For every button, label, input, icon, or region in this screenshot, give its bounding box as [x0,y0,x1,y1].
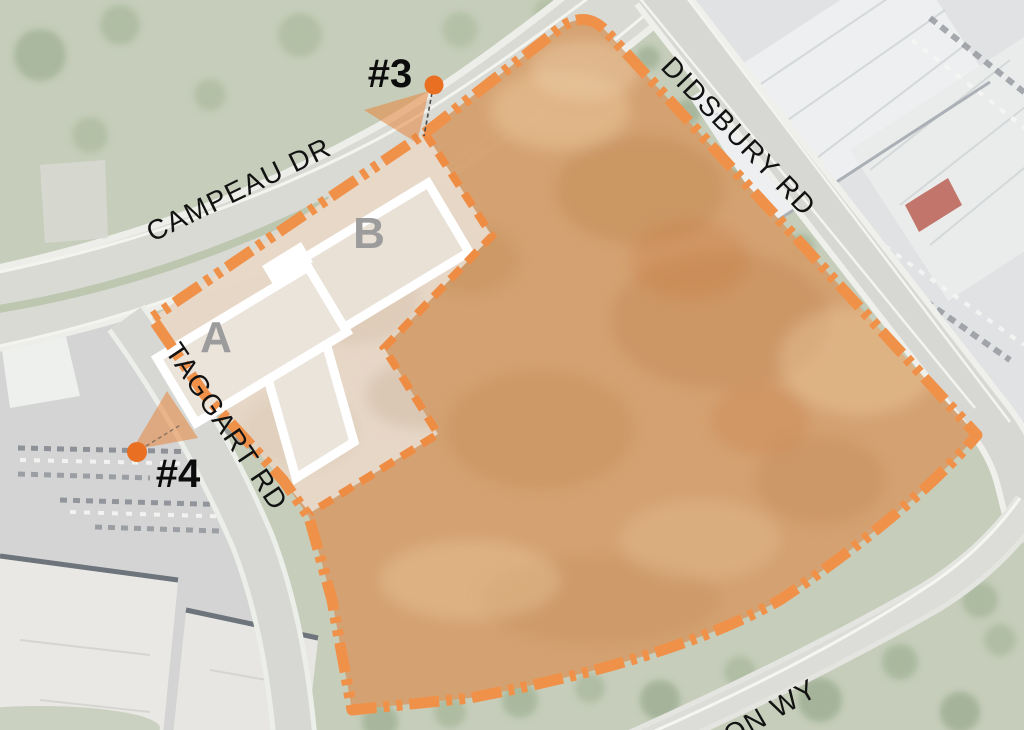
gravel-patch [40,160,108,243]
building-b-label: B [353,209,385,258]
marker-4-label: #4 [156,452,201,496]
large-building-roof [0,558,178,730]
marker-dot-icon [425,76,444,95]
building-a-label: A [200,313,232,362]
aerial-site-plan-map: A B #3 #4 CAMPEAU DR DIDSBURY RD TAGGART… [0,0,1024,730]
marker-3-label: #3 [368,52,413,96]
map-canvas: A B #3 #4 CAMPEAU DR DIDSBURY RD TAGGART… [0,0,1024,730]
marker-dot-icon [127,442,147,462]
